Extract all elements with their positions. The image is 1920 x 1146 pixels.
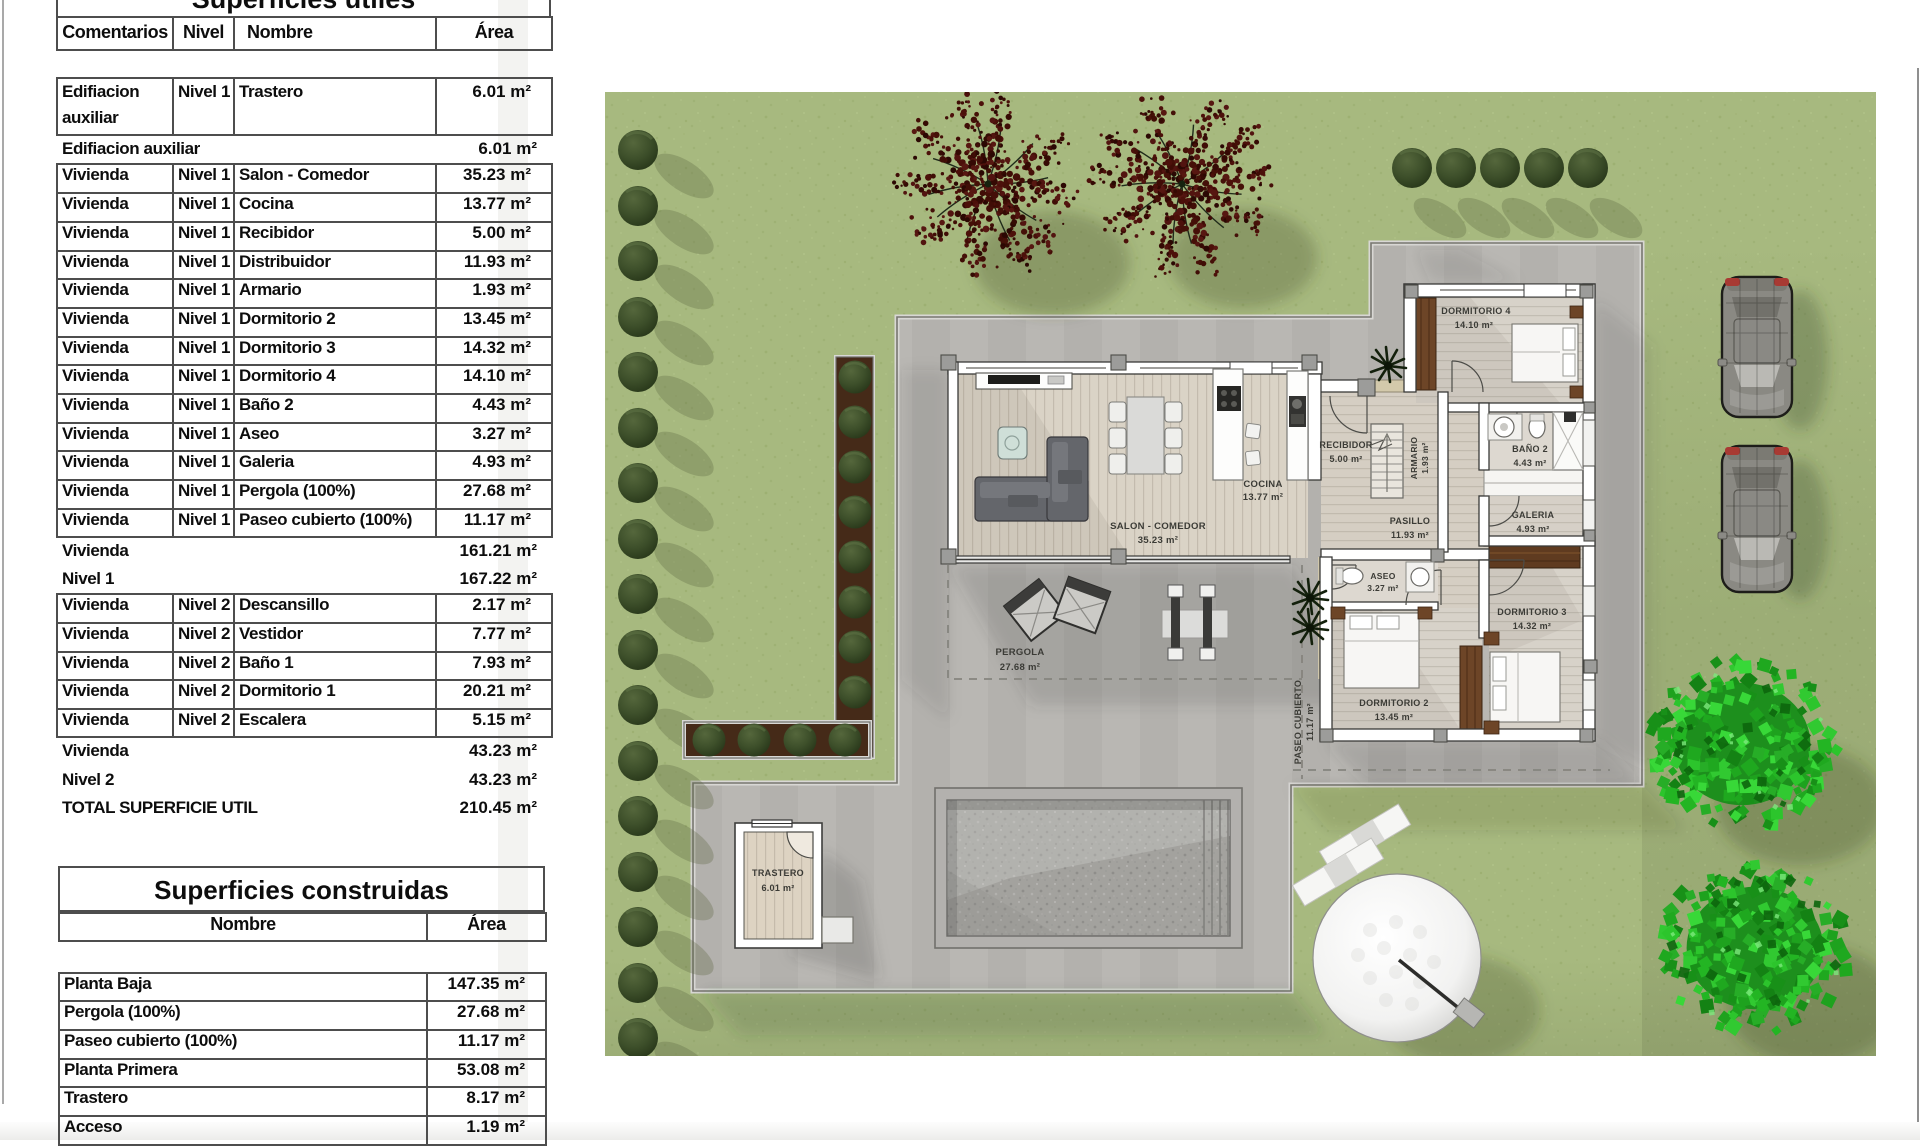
svg-text:4.43 m²: 4.43 m² <box>1513 458 1546 468</box>
svg-text:PASILLO: PASILLO <box>1390 516 1430 526</box>
svg-text:4.93 m²: 4.93 m² <box>1516 524 1549 534</box>
svg-text:11.17 m²: 11.17 m² <box>1305 703 1315 741</box>
svg-text:3.27 m²: 3.27 m² <box>1367 583 1398 593</box>
svg-text:14.32 m²: 14.32 m² <box>1513 621 1551 631</box>
svg-text:ASEO: ASEO <box>1370 571 1395 581</box>
svg-text:5.00 m²: 5.00 m² <box>1329 454 1362 464</box>
svg-text:14.10 m²: 14.10 m² <box>1455 320 1493 330</box>
svg-text:6.01 m²: 6.01 m² <box>761 883 794 893</box>
svg-text:13.77 m²: 13.77 m² <box>1243 492 1283 503</box>
svg-text:13.45 m²: 13.45 m² <box>1375 712 1413 722</box>
svg-text:RECIBIDOR: RECIBIDOR <box>1319 440 1372 450</box>
svg-text:11.93 m²: 11.93 m² <box>1391 530 1429 540</box>
svg-text:GALERIA: GALERIA <box>1512 510 1555 520</box>
svg-text:SALON - COMEDOR: SALON - COMEDOR <box>1110 521 1206 532</box>
svg-text:35.23 m²: 35.23 m² <box>1138 535 1178 546</box>
svg-text:1.93 m²: 1.93 m² <box>1420 442 1430 473</box>
svg-text:ARMARIO: ARMARIO <box>1409 437 1419 480</box>
svg-text:PASEO CUBIERTO: PASEO CUBIERTO <box>1293 680 1303 764</box>
svg-text:COCINA: COCINA <box>1243 479 1282 490</box>
svg-text:TRASTERO: TRASTERO <box>752 868 804 878</box>
svg-text:DORMITORIO 3: DORMITORIO 3 <box>1497 607 1566 617</box>
svg-text:DORMITORIO 4: DORMITORIO 4 <box>1441 306 1510 316</box>
svg-text:PERGOLA: PERGOLA <box>995 647 1044 658</box>
svg-text:27.68 m²: 27.68 m² <box>1000 662 1040 673</box>
svg-text:BAÑO 2: BAÑO 2 <box>1512 444 1548 454</box>
svg-text:DORMITORIO 2: DORMITORIO 2 <box>1359 698 1428 708</box>
